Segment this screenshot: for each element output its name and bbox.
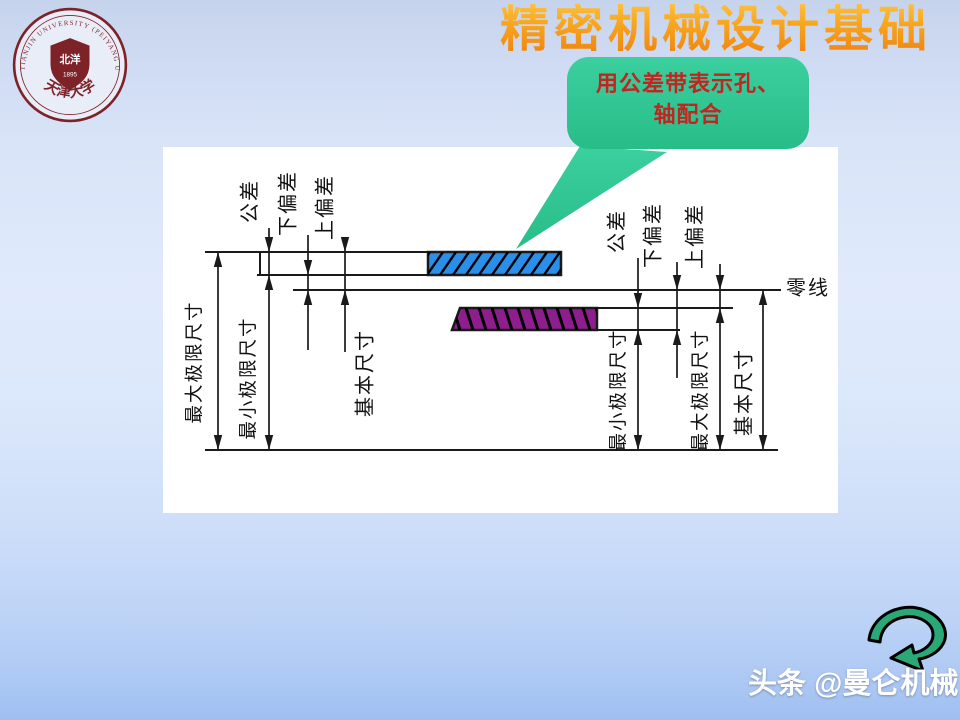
brand-handle: @曼仑机械: [814, 668, 958, 700]
slide-title: 精密机械设计基础: [496, 0, 936, 61]
callout-text-line2: 轴配合: [567, 99, 809, 130]
callout-text-line1: 用公差带表示孔、: [567, 68, 809, 99]
diagram-panel: [163, 147, 838, 513]
brand-platform: 头条: [748, 668, 806, 700]
seal-shield-name: 北洋: [59, 53, 81, 66]
callout-text: 用公差带表示孔、 轴配合: [567, 68, 809, 130]
seal-year: 1895: [63, 72, 78, 79]
brand-watermark: 头条 @曼仑机械: [748, 660, 960, 702]
university-seal-logo: TIANJIN UNIVERSITY (PEIYANG UNIVERSITY) …: [12, 7, 128, 123]
slide-background: TIANJIN UNIVERSITY (PEIYANG UNIVERSITY) …: [0, 0, 960, 720]
